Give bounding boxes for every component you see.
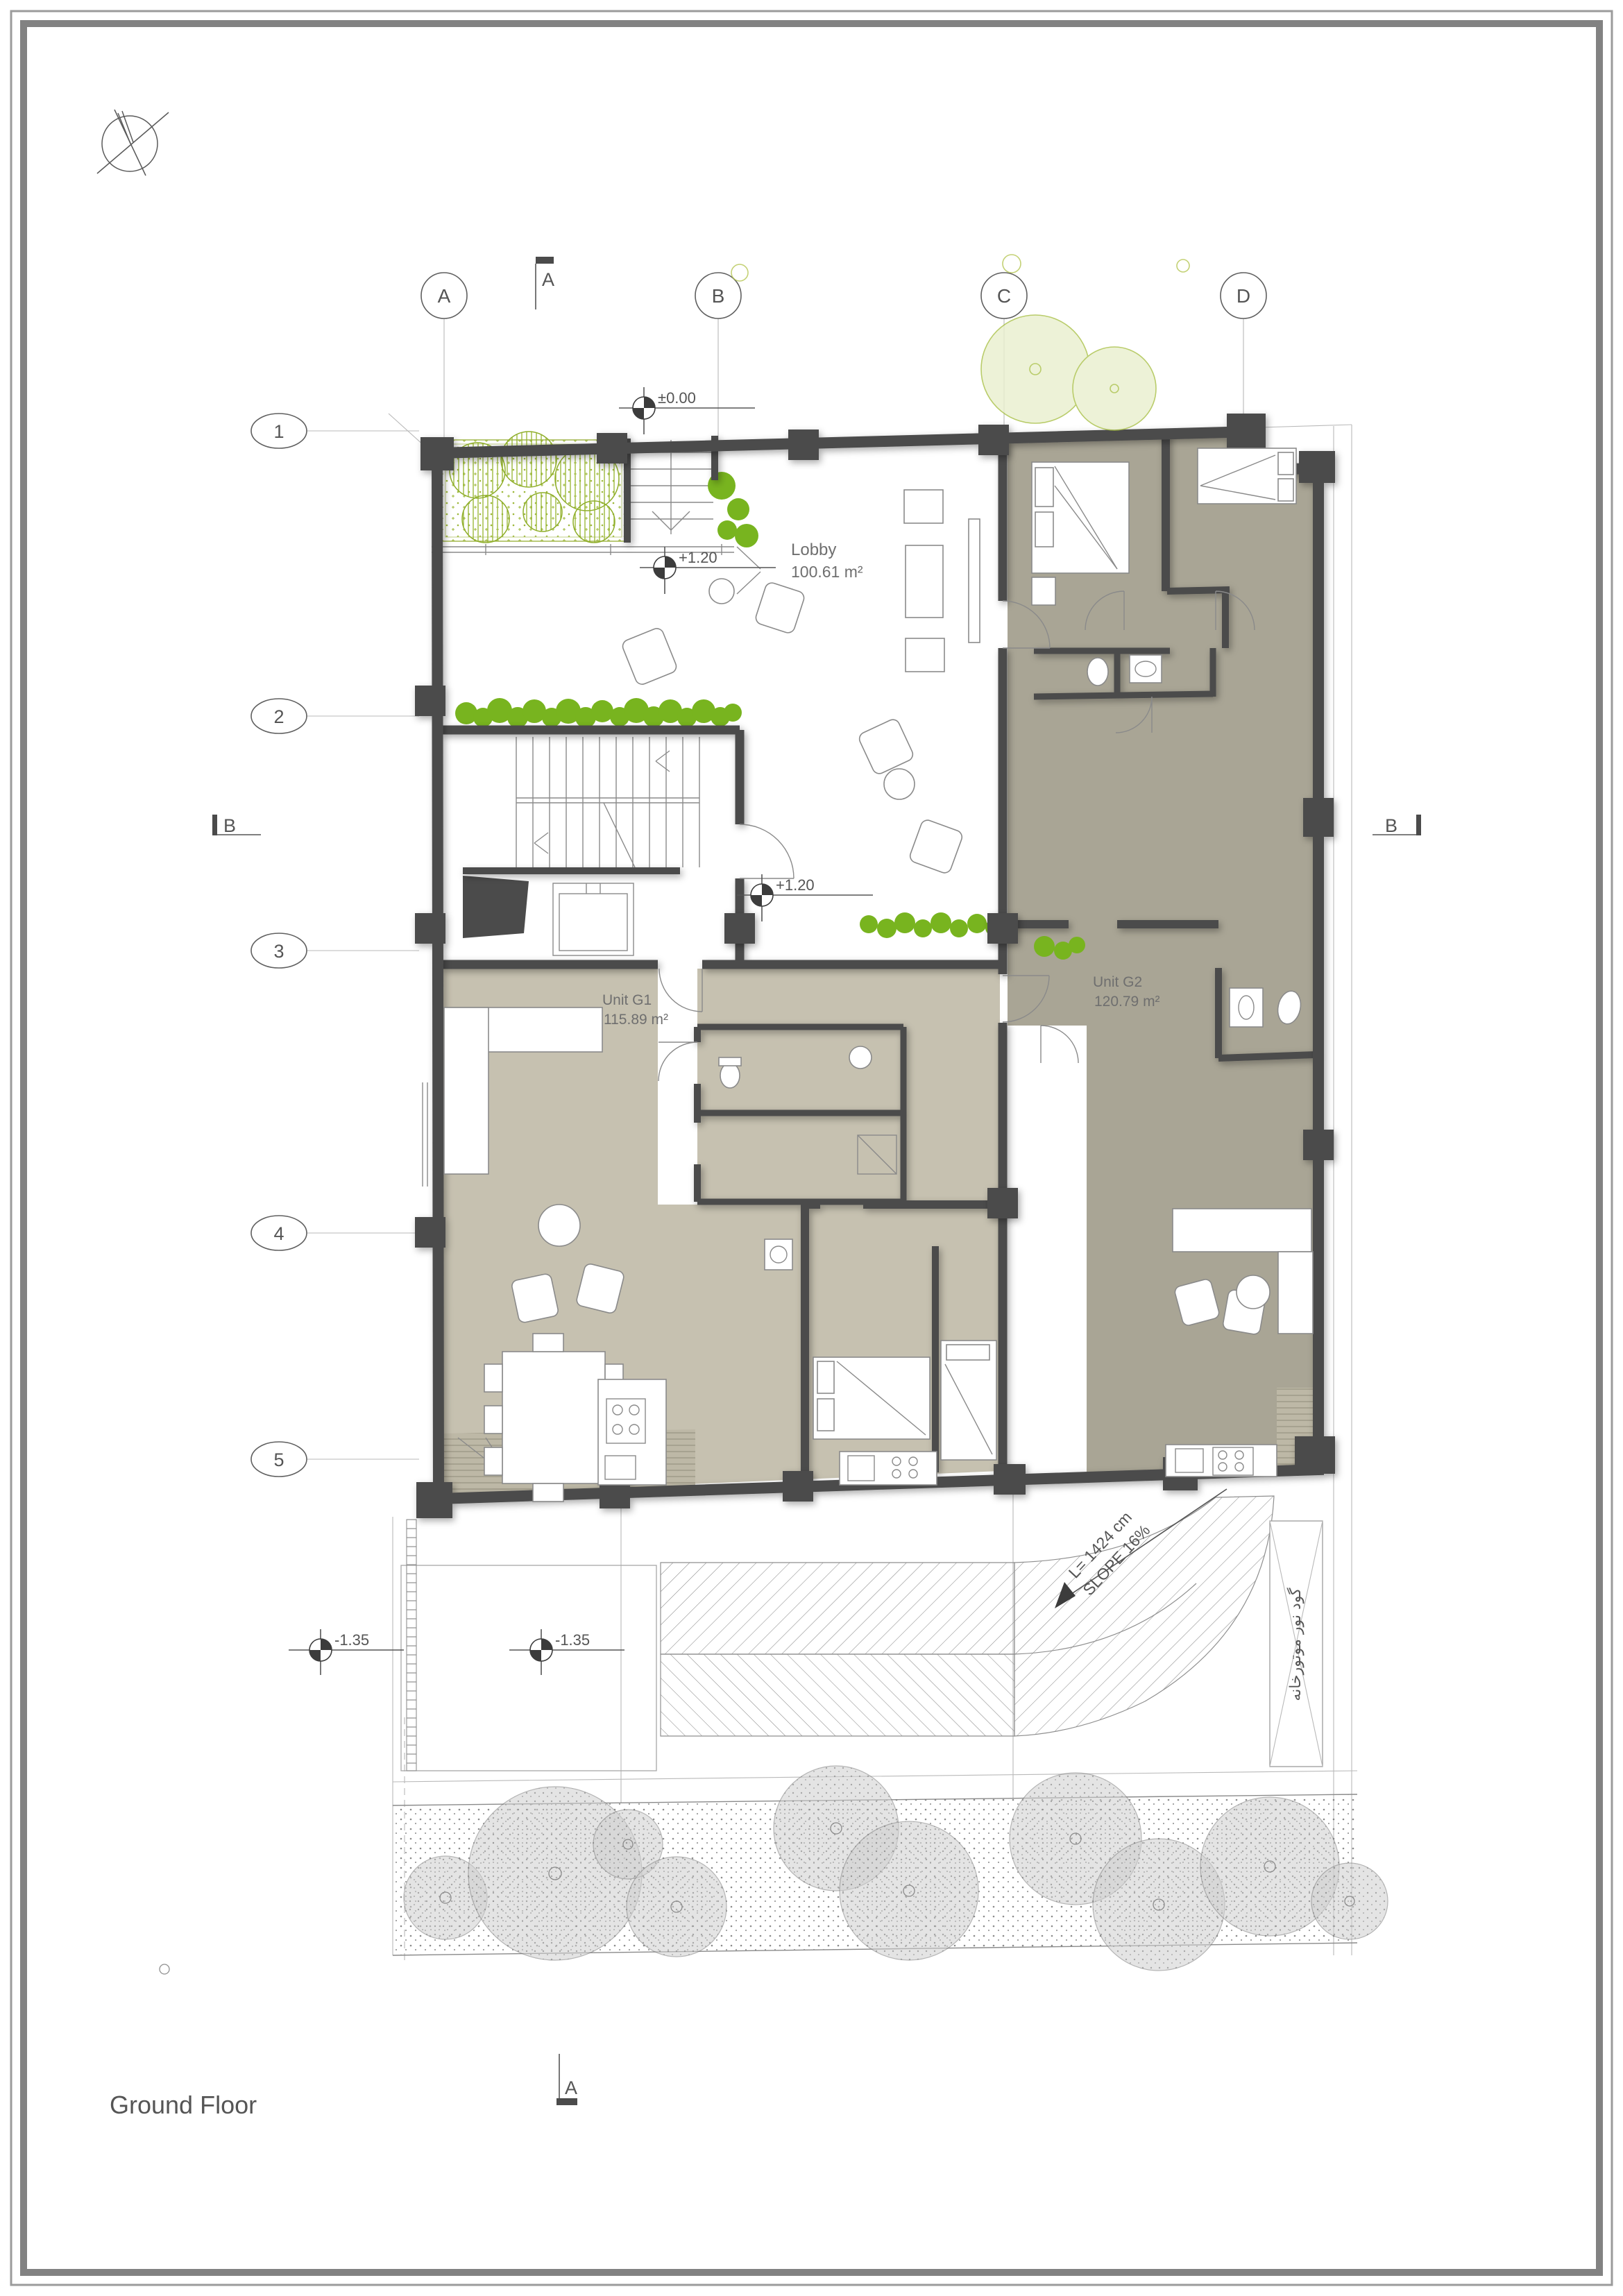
unit-g2-area: 120.79 m² bbox=[1094, 994, 1160, 1010]
grid-row-label: 1 bbox=[273, 421, 284, 442]
machine-room-light-well: گود نور موتورخانه bbox=[1270, 1521, 1323, 1767]
unit-g2-label: Unit G2 bbox=[1093, 974, 1142, 990]
duct-shaft bbox=[463, 876, 529, 938]
lobby-hedge-row bbox=[455, 698, 742, 728]
light-trees bbox=[731, 255, 1189, 430]
elevator bbox=[553, 883, 634, 955]
kitchenette bbox=[840, 1452, 937, 1485]
section-label: A bbox=[565, 2077, 577, 2098]
grid-row-label: 4 bbox=[273, 1223, 284, 1244]
level-marker-lobby-lower: +1.20 bbox=[737, 874, 873, 921]
grid-row-4: 4 bbox=[251, 1216, 419, 1250]
entry-shrubs bbox=[708, 472, 758, 547]
level-value: -1.35 bbox=[334, 1631, 369, 1649]
grid-column-label: C bbox=[997, 285, 1011, 307]
level-marker-entry: ±0.00 bbox=[619, 387, 755, 434]
g2-kitchen bbox=[1166, 1445, 1277, 1477]
g1-bed-1 bbox=[813, 1357, 930, 1439]
grid-rows: 1 2 3 4 5 bbox=[251, 414, 419, 1477]
grid-column-label: B bbox=[712, 285, 725, 307]
core-staircase bbox=[463, 737, 699, 955]
grid-row-label: 3 bbox=[273, 941, 284, 962]
grid-row-2: 2 bbox=[251, 699, 419, 733]
grid-row-label: 2 bbox=[273, 706, 284, 727]
light-well-note: گود نور موتورخانه bbox=[1286, 1588, 1305, 1701]
section-label: B bbox=[1385, 815, 1397, 836]
level-marker-yard-left: -1.35 bbox=[289, 1629, 404, 1675]
lobby-area: 100.61 m² bbox=[791, 563, 863, 581]
patio-light-well bbox=[1008, 1026, 1087, 1472]
level-value: -1.35 bbox=[555, 1631, 590, 1649]
driveway-ramp: L= 1424 cm SLOPE 16% bbox=[661, 1489, 1274, 1736]
grid-column-label: D bbox=[1237, 285, 1250, 307]
section-marker-right: B bbox=[1373, 815, 1421, 836]
g2-bed-2 bbox=[1198, 448, 1296, 504]
level-marker-yard-right: -1.35 bbox=[509, 1629, 624, 1675]
grid-row-3: 3 bbox=[251, 933, 419, 968]
grid-column-b: B bbox=[695, 273, 741, 444]
level-value: +1.20 bbox=[679, 549, 717, 566]
unit-g1-area: 115.89 m² bbox=[604, 1012, 668, 1028]
lobby-label: Lobby bbox=[791, 541, 836, 559]
grid-row-5: 5 bbox=[251, 1442, 419, 1477]
entry-stairs bbox=[629, 439, 758, 547]
section-label: A bbox=[542, 269, 554, 290]
drawing-title: Ground Floor bbox=[110, 2091, 257, 2119]
g1-kitchen bbox=[598, 1379, 666, 1485]
section-label: B bbox=[223, 815, 236, 836]
north-arrow-icon bbox=[97, 110, 169, 176]
g1-bed-2 bbox=[941, 1341, 996, 1460]
level-value: +1.20 bbox=[776, 876, 815, 894]
level-value: ±0.00 bbox=[658, 389, 696, 407]
grid-column-a: A bbox=[421, 273, 467, 448]
grid-column-label: A bbox=[438, 285, 451, 307]
level-marker-lobby-upper: +1.20 bbox=[640, 547, 776, 594]
drawing-sheet: A B C D 1 2 bbox=[0, 0, 1623, 2296]
section-marker-left: B bbox=[212, 815, 261, 836]
section-marker-top: A bbox=[536, 257, 554, 309]
unit-g1-label: Unit G1 bbox=[602, 992, 652, 1008]
grid-column-d: D bbox=[1221, 273, 1266, 429]
retaining-wall-hatch bbox=[407, 1520, 416, 1771]
section-marker-bottom: A bbox=[556, 2054, 577, 2105]
g1-hedge-row bbox=[860, 912, 1002, 938]
grid-row-label: 5 bbox=[273, 1449, 284, 1470]
